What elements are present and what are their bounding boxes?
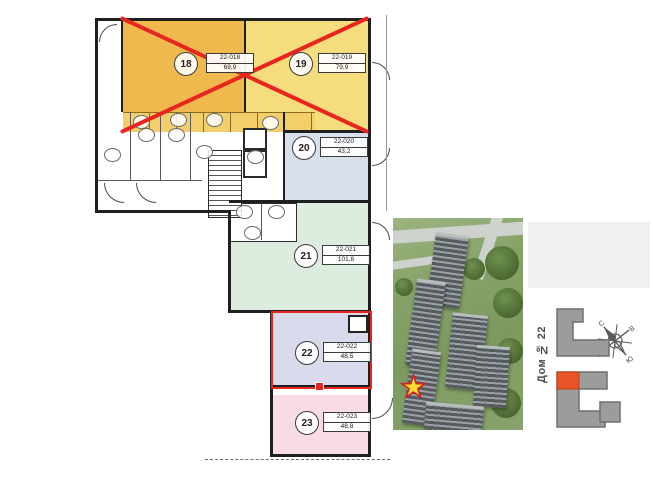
unit-22-number[interactable]: 22	[295, 341, 319, 365]
unit-19-number[interactable]: 19	[289, 52, 313, 76]
panel-background	[528, 222, 650, 288]
unit-21-label[interactable]: 22-021 101,8	[322, 245, 370, 265]
unit-23-number[interactable]: 23	[295, 411, 319, 435]
unit-19-label[interactable]: 22-019 79,9	[318, 53, 366, 73]
unit-20-label[interactable]: 22-020 43,2	[320, 137, 368, 157]
door-arc	[372, 148, 390, 166]
door-arc	[136, 183, 156, 203]
unit22-shaft	[348, 315, 368, 333]
aerial-photo: ★	[393, 218, 523, 430]
svg-text:В: В	[628, 325, 636, 334]
siteplan-highlighted-section	[557, 372, 579, 389]
unit-21-number[interactable]: 21	[294, 244, 318, 268]
svg-text:Ю: Ю	[625, 355, 635, 365]
dimension-line	[386, 15, 387, 211]
unit-23-label[interactable]: 22-023 48,8	[323, 412, 371, 432]
door-arc	[99, 24, 117, 42]
unit-18-label[interactable]: 22-018 69,9	[206, 53, 254, 73]
building-block	[473, 345, 510, 408]
siteplan-building-top	[555, 305, 615, 363]
unit-20-number[interactable]: 20	[292, 136, 316, 160]
door-arc	[372, 62, 390, 80]
unit-22-label[interactable]: 22-022 48,5	[323, 342, 371, 362]
door-arc	[372, 398, 393, 419]
selection-handle[interactable]	[315, 382, 324, 391]
building-block	[424, 402, 484, 430]
location-star-icon: ★	[400, 373, 427, 403]
house-number-label: Дом № 22	[536, 308, 552, 400]
page: 18 22-018 69,9 19 22-019 79,9 20 22-020 …	[0, 0, 653, 489]
elevator-shaft	[243, 128, 267, 150]
door-arc	[104, 183, 124, 203]
door-arc	[372, 222, 390, 240]
siteplan-building-bottom	[555, 370, 625, 432]
unit-18-number[interactable]: 18	[174, 52, 198, 76]
floor-plan: 18 22-018 69,9 19 22-019 79,9 20 22-020 …	[0, 0, 392, 489]
boundary-dashed-line	[205, 459, 390, 460]
